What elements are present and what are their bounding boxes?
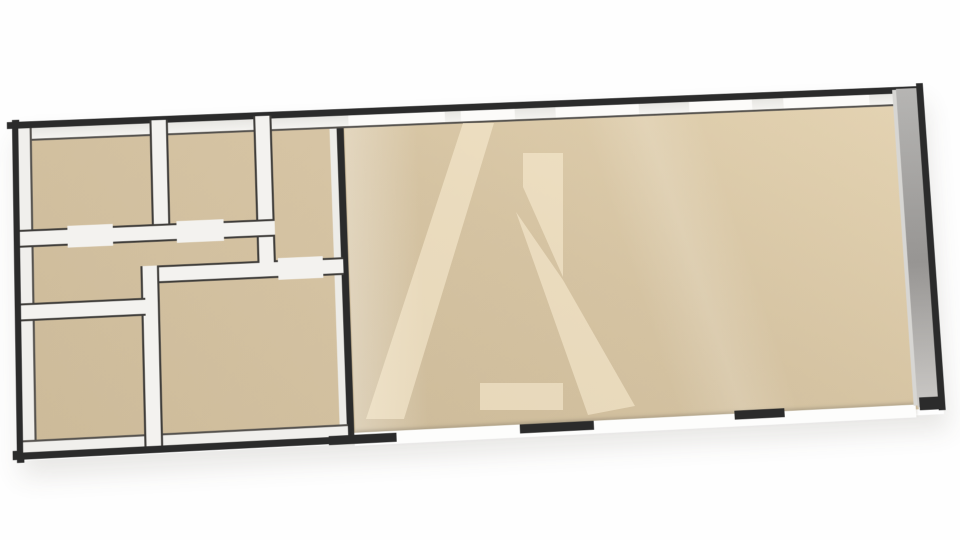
main-room: [349, 109, 899, 426]
room-bottom-middle: [161, 277, 337, 429]
door-opening-2: [176, 219, 224, 243]
room-top-middle: [170, 132, 254, 221]
door-opening-1: [67, 224, 113, 248]
door-opening-3: [278, 256, 324, 280]
room-bottom-left: [34, 318, 142, 436]
window-segment-2: [461, 109, 515, 122]
wall-a-b: [149, 120, 170, 228]
bottom-right-corner: [919, 396, 946, 410]
room-top-right: [274, 129, 332, 256]
floor-plan: [12, 86, 944, 461]
room-top-left: [31, 136, 150, 227]
floor-plan-image: [0, 0, 960, 540]
